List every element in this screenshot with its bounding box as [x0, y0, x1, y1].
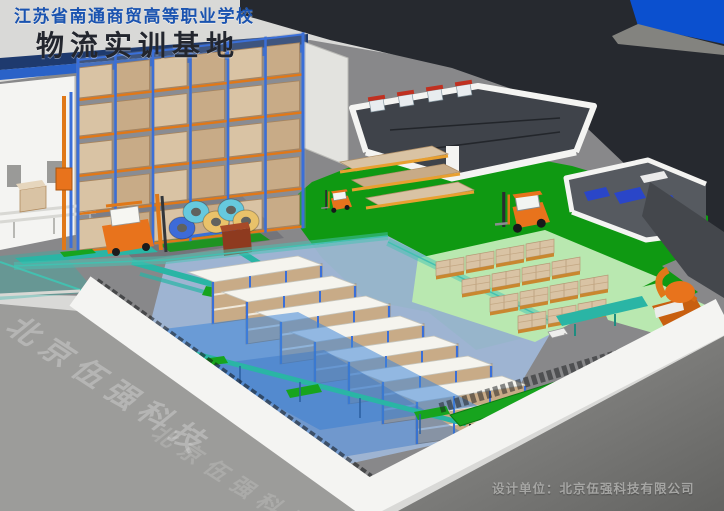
rendering-canvas: 北京伍强科技 北京伍强科技 江苏省南通商贸高等职业学校 物流实训基地 设计单位：… — [0, 0, 724, 511]
design-credit: 设计单位：北京伍强科技有限公司 — [492, 478, 695, 497]
partition-wall — [304, 42, 348, 166]
title-block: 江苏省南通商贸高等职业学校 物流实训基地 — [14, 6, 255, 63]
school-name: 江苏省南通商贸高等职业学校 — [14, 6, 255, 27]
warehouse-3d-scene: 北京伍强科技 北京伍强科技 — [0, 0, 724, 511]
facility-title: 物流实训基地 — [36, 28, 255, 63]
carton-box — [20, 186, 46, 212]
